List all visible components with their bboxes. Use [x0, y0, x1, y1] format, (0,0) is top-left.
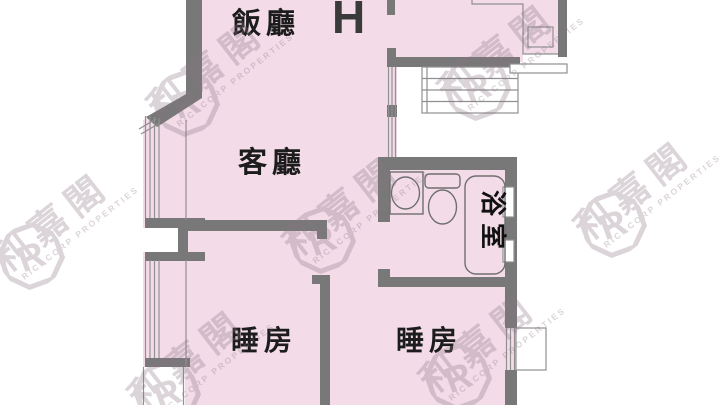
window-ledge	[510, 64, 567, 73]
bathroom-label: 浴室	[478, 190, 508, 256]
staircase-common-area	[422, 67, 518, 113]
living-room-label: 客廳	[238, 145, 306, 179]
bedroom1-label: 睡房	[231, 324, 297, 356]
floor-plan-drawing: 飯廳 H 客廳 睡房 睡房 浴室	[0, 0, 720, 405]
unit-label: H	[332, 0, 365, 43]
floor-plan-page: 飯廳 H 客廳 睡房 睡房 浴室 R 利嘉閣RICACORP PROPERTIE…	[0, 0, 720, 405]
ac-platform-right	[516, 328, 546, 370]
dining-room-label: 飯廳	[232, 6, 300, 40]
bedroom2-label: 睡房	[396, 324, 462, 356]
